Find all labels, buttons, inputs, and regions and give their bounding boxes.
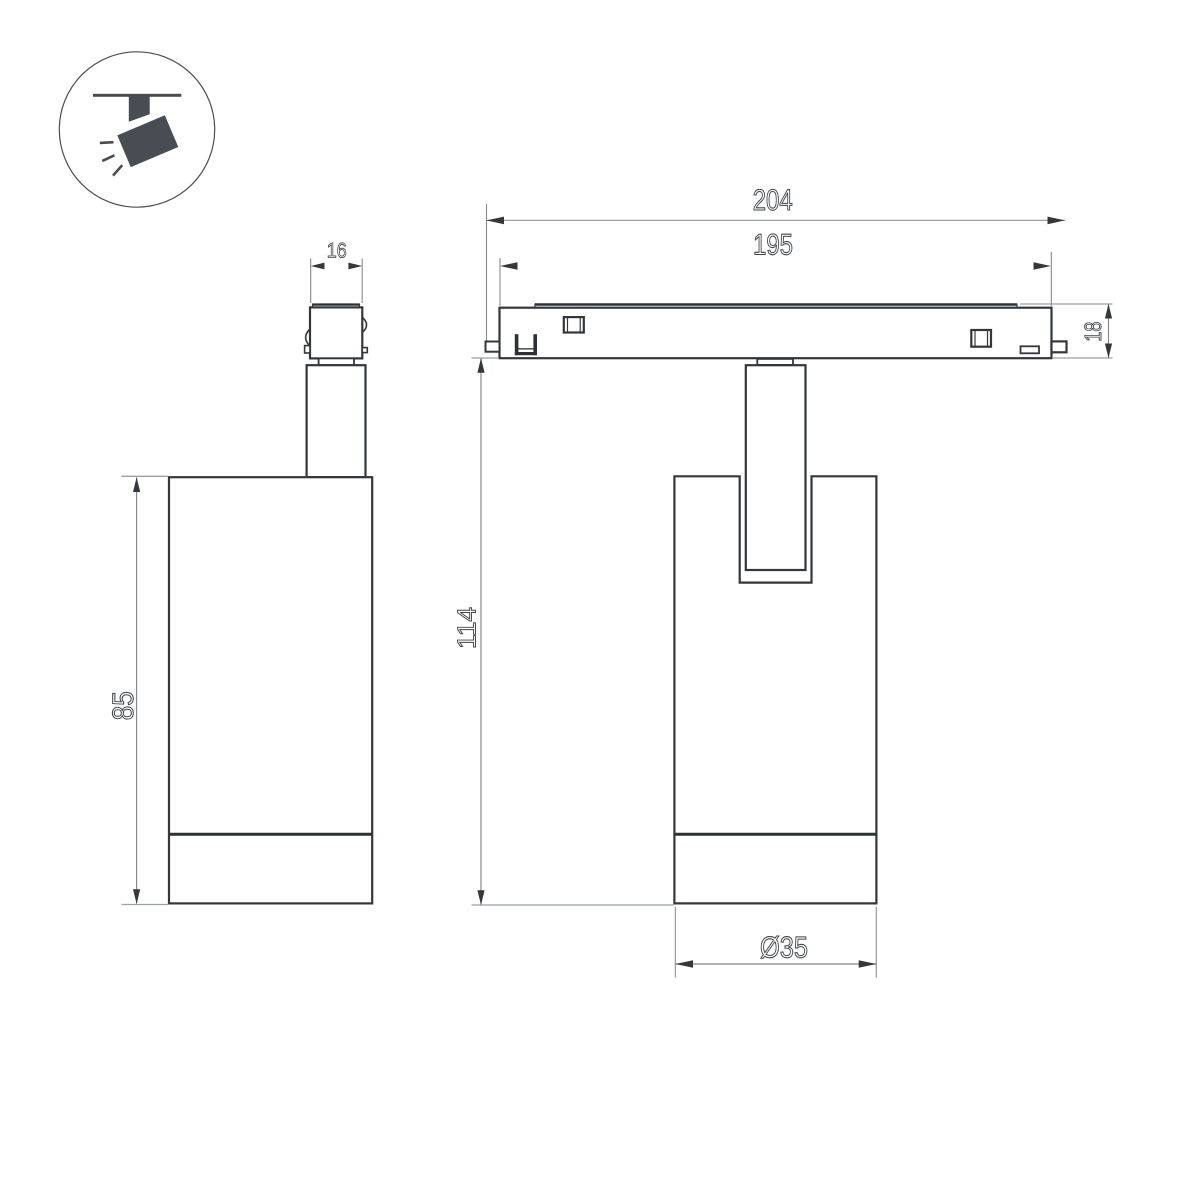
svg-text:16: 16 bbox=[327, 239, 347, 262]
svg-text:18: 18 bbox=[1080, 322, 1106, 342]
svg-text:204: 204 bbox=[753, 184, 793, 217]
svg-text:85: 85 bbox=[107, 691, 140, 720]
svg-text:195: 195 bbox=[753, 229, 793, 262]
svg-text:Ø35: Ø35 bbox=[760, 931, 808, 964]
svg-text:114: 114 bbox=[452, 607, 482, 649]
